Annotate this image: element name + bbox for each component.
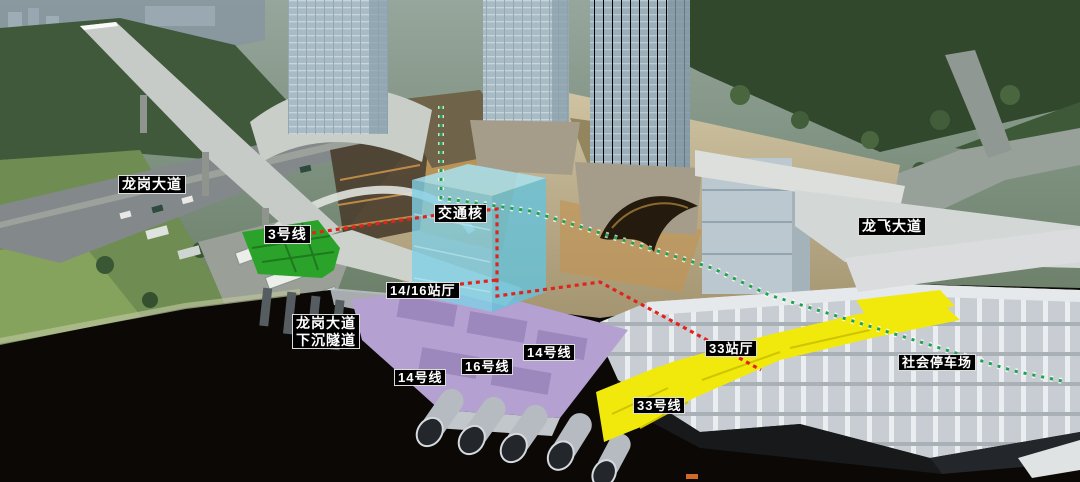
label-line14-left: 14号线 [394,369,446,386]
label-line3: 3号线 [264,225,311,244]
label-longfei-avenue: 龙飞大道 [858,217,926,236]
label-line14-right: 14号线 [523,344,575,361]
label-sunken-tunnel-line2: 下沉隧道 [296,332,356,348]
scene-svg [0,0,1080,482]
label-longgang-avenue: 龙岗大道 [118,175,186,194]
label-sunken-tunnel-line1: 龙岗大道 [296,315,356,331]
label-hall-14-16: 14/16站厅 [386,282,460,299]
label-sunken-tunnel: 龙岗大道 下沉隧道 [292,314,360,349]
label-line33: 33号线 [633,397,685,414]
label-hall-33: 33站厅 [705,340,757,357]
label-public-parking: 社会停车场 [898,354,976,371]
label-transport-core: 交通核 [434,204,487,223]
label-line16: 16号线 [461,358,513,375]
tower-middle [470,0,580,175]
rendering-canvas: 龙岗大道 3号线 交通核 14/16站厅 龙岗大道 下沉隧道 14号线 16号线… [0,0,1080,482]
